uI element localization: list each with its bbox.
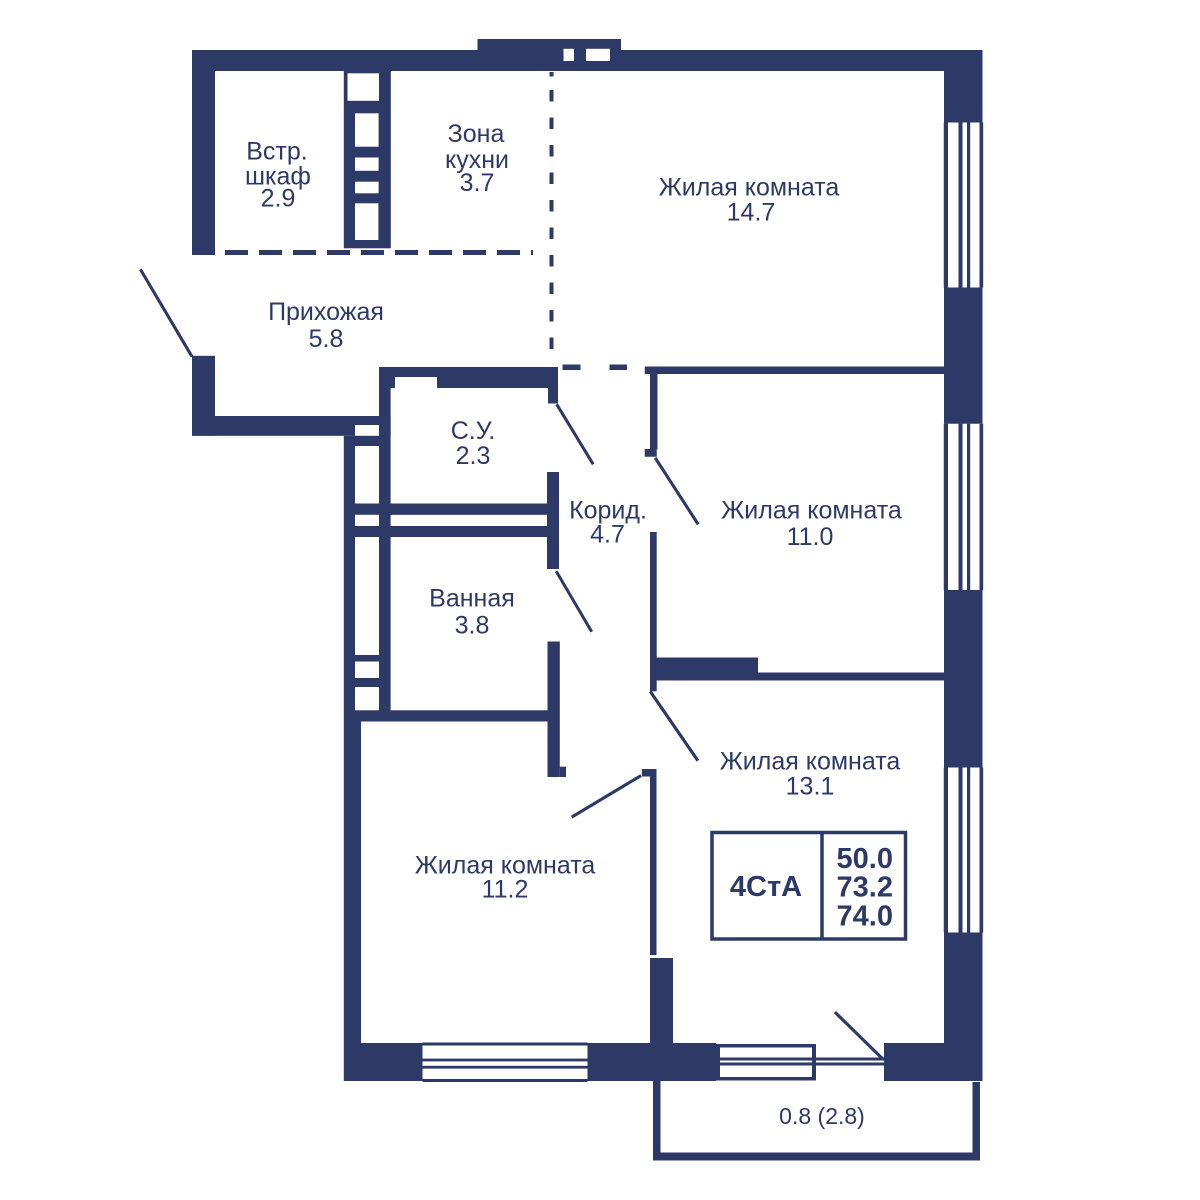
- svg-text:Ванная: Ванная: [429, 585, 515, 613]
- svg-text:2.9: 2.9: [261, 185, 296, 213]
- svg-text:Жилая комната: Жилая комната: [659, 174, 840, 202]
- svg-text:3.8: 3.8: [455, 612, 490, 640]
- svg-text:Жилая комната: Жилая комната: [720, 748, 901, 776]
- svg-text:50.0: 50.0: [837, 843, 893, 875]
- svg-text:14.7: 14.7: [727, 199, 776, 227]
- svg-text:3.7: 3.7: [460, 169, 495, 197]
- svg-text:Зона: Зона: [448, 120, 505, 148]
- svg-text:11.0: 11.0: [787, 523, 834, 551]
- svg-text:4.7: 4.7: [590, 521, 625, 549]
- svg-text:4СтА: 4СтА: [730, 871, 802, 903]
- svg-text:74.0: 74.0: [837, 901, 893, 933]
- svg-text:Жилая комната: Жилая комната: [721, 497, 902, 525]
- svg-text:С.У.: С.У.: [451, 417, 496, 445]
- svg-text:13.1: 13.1: [786, 773, 835, 801]
- svg-text:0.8 (2.8): 0.8 (2.8): [779, 1103, 865, 1129]
- svg-text:Прихожая: Прихожая: [268, 298, 384, 326]
- svg-text:2.3: 2.3: [456, 442, 491, 470]
- svg-text:73.2: 73.2: [837, 872, 893, 904]
- svg-text:5.8: 5.8: [309, 325, 344, 353]
- svg-text:Встр.: Встр.: [246, 138, 307, 166]
- svg-text:11.2: 11.2: [482, 876, 529, 904]
